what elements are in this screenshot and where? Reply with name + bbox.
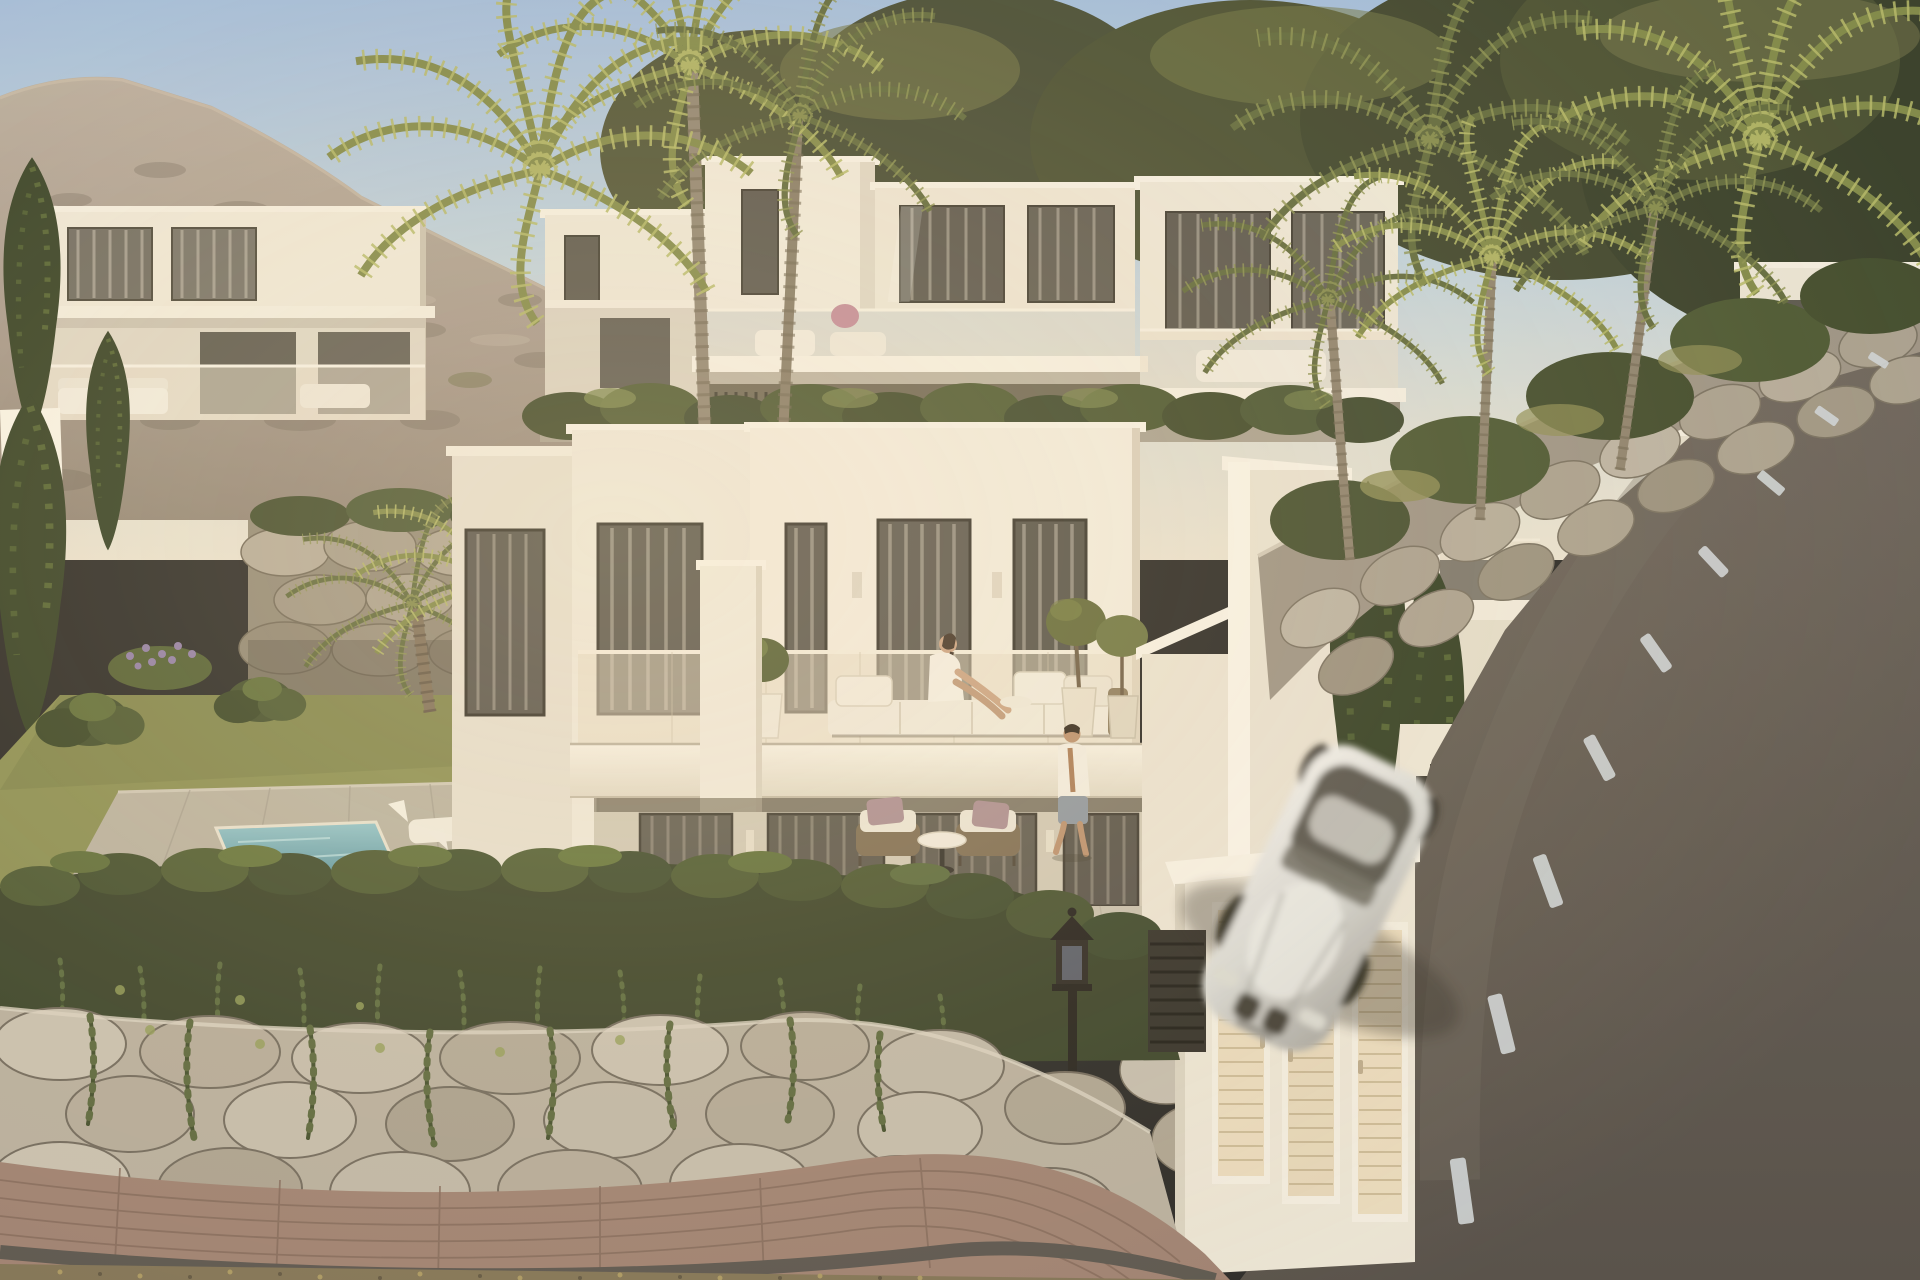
scene-canvas: Golden-hour architectural rendering of m… — [0, 0, 1920, 1280]
warm-tint — [0, 0, 1920, 1280]
rendered-photo: Golden-hour architectural rendering of m… — [0, 0, 1920, 1280]
